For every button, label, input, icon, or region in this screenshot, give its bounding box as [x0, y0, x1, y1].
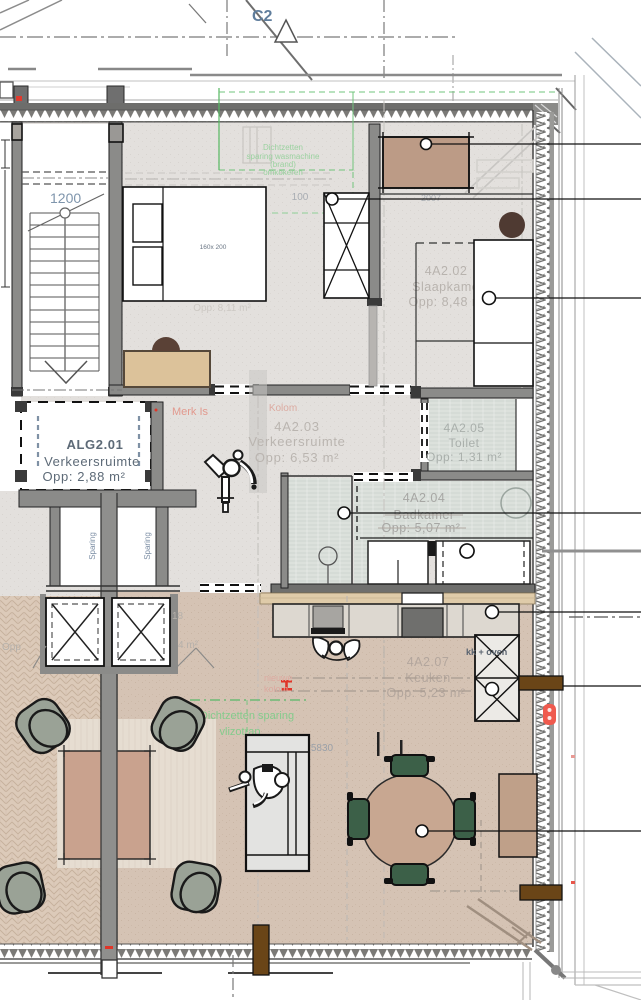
svg-text:C2: C2	[252, 8, 273, 25]
svg-text:kk + oven: kk + oven	[466, 647, 507, 657]
svg-text:4A2.04: 4A2.04	[403, 491, 446, 505]
svg-text:Sparing: Sparing	[143, 532, 152, 560]
svg-text:Dichtzetten: Dichtzetten	[263, 143, 303, 152]
svg-text:Opp: 2,88 m²: Opp: 2,88 m²	[42, 469, 125, 484]
svg-text:100: 100	[292, 192, 309, 203]
svg-text:4A2.05: 4A2.05	[443, 421, 484, 435]
svg-text:Opp: 6,53 m²: Opp: 6,53 m²	[255, 450, 339, 465]
svg-text:4A2.07: 4A2.07	[407, 655, 450, 669]
svg-text:Verkeersruimte: Verkeersruimte	[44, 454, 140, 469]
svg-text:Toilet: Toilet	[448, 436, 479, 450]
svg-text:kolom: kolom	[264, 684, 288, 694]
svg-text:omkokeren: omkokeren	[263, 168, 303, 177]
svg-text:Opp: 5,23 m²: Opp: 5,23 m²	[387, 686, 466, 700]
svg-text:4 m²: 4 m²	[178, 640, 199, 651]
svg-text:4A2.02: 4A2.02	[425, 264, 468, 278]
svg-text:Verkeersruimte: Verkeersruimte	[248, 434, 345, 449]
svg-text:Sparing: Sparing	[88, 532, 97, 560]
svg-text:Opp: 1,31 m²: Opp: 1,31 m²	[426, 450, 502, 464]
svg-text:Opp: Opp	[2, 642, 21, 653]
svg-text:Dichtzetten sparing: Dichtzetten sparing	[200, 710, 294, 722]
svg-text:ALG2.01: ALG2.01	[67, 437, 124, 452]
svg-text:18: 18	[172, 611, 184, 622]
svg-text:5830: 5830	[311, 743, 334, 754]
svg-text:4A2.03: 4A2.03	[274, 419, 319, 434]
svg-text:Opp: 8,11 m²: Opp: 8,11 m²	[193, 303, 251, 314]
svg-text:Kolom: Kolom	[269, 403, 297, 414]
svg-text:nieuwe: nieuwe	[264, 673, 293, 683]
svg-text:1200: 1200	[50, 190, 81, 206]
svg-text:2007: 2007	[421, 193, 441, 203]
svg-text:160x 200: 160x 200	[200, 244, 227, 251]
svg-text:Merk Is: Merk Is	[172, 406, 209, 418]
svg-text:Slaapkamer: Slaapkamer	[412, 280, 484, 294]
